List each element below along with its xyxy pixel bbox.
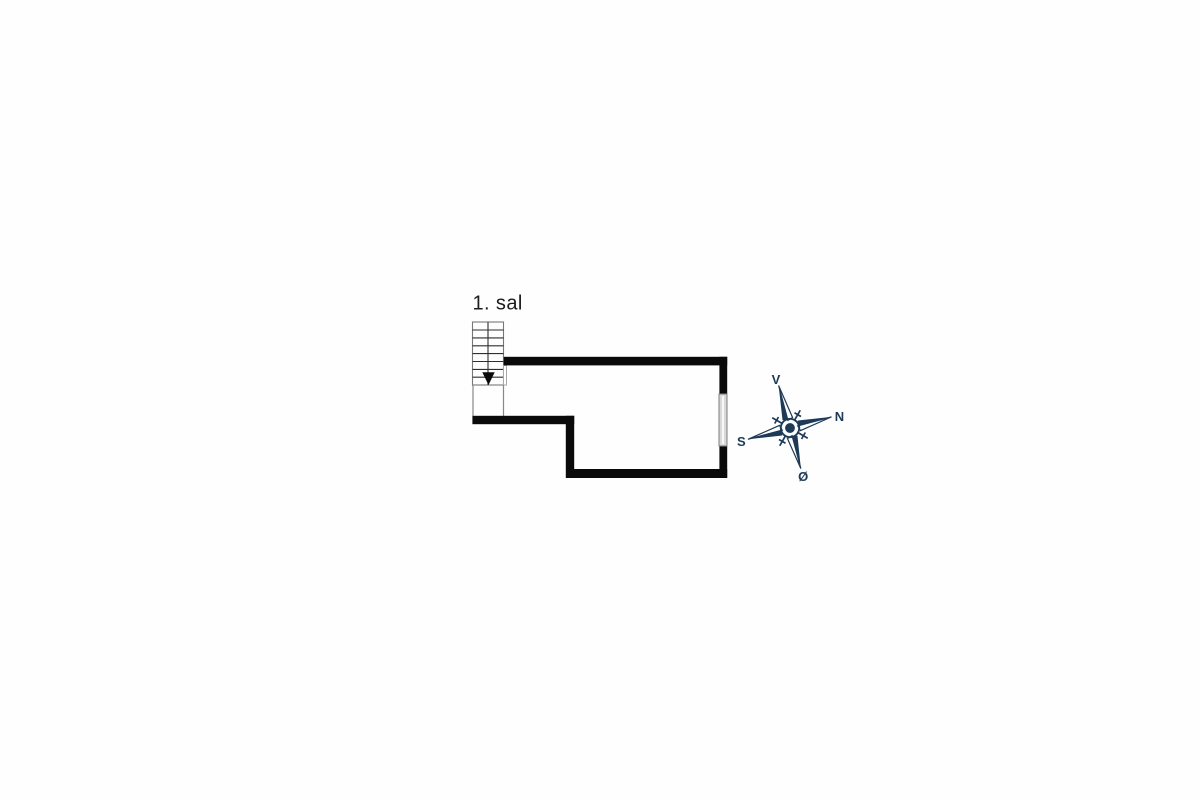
svg-text:V: V xyxy=(772,372,781,387)
svg-text:S: S xyxy=(737,434,746,449)
svg-text:N: N xyxy=(835,409,844,424)
svg-text:1. sal: 1. sal xyxy=(473,293,523,315)
svg-text:Ø: Ø xyxy=(798,469,808,484)
